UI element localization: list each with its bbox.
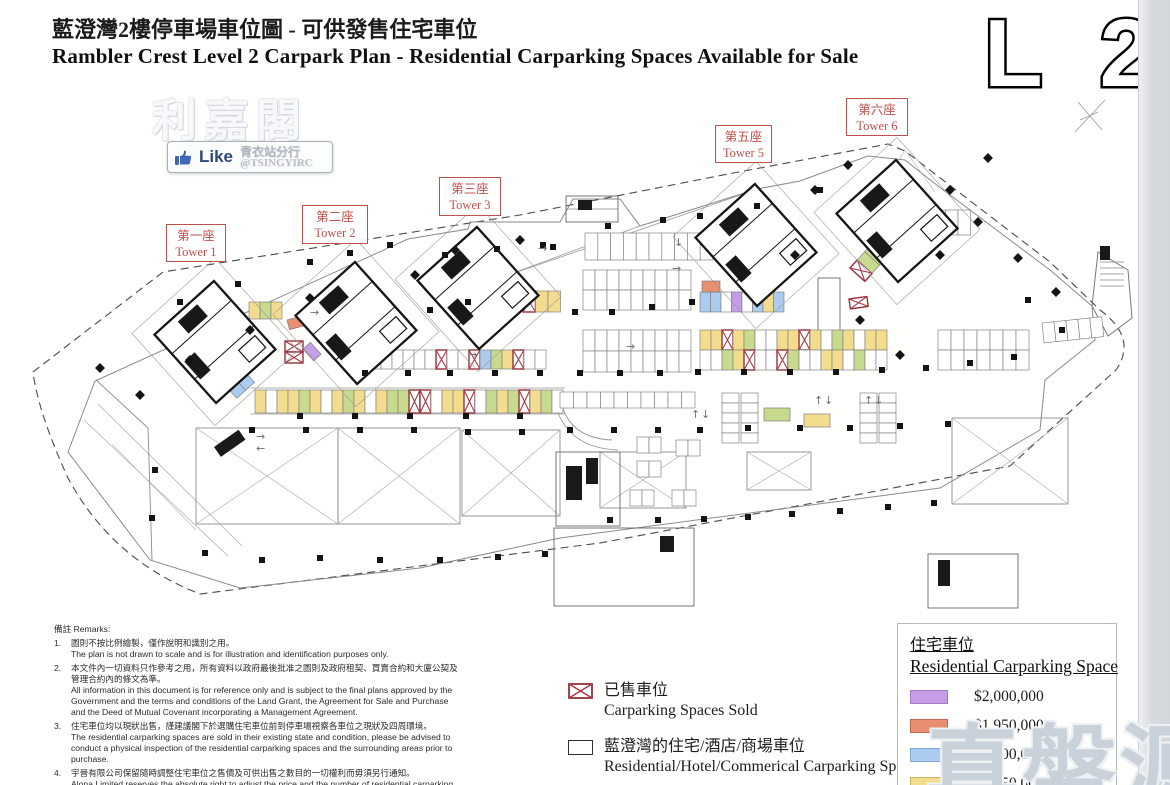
column [447,370,453,376]
column [494,246,500,252]
carparking-space [619,290,631,310]
carparking-space [700,330,711,350]
carparking-space [821,330,832,350]
carparking-space [788,350,799,370]
carparking-space [667,351,679,372]
remark-item: 1.圖則不按比例繪製，僅作說明和識別之用。The plan is not dra… [54,638,462,660]
sold-swatch-icon [568,683,593,699]
column [317,555,323,561]
drive-direction-arrow: ↓ [824,394,833,407]
carparking-space [684,490,696,506]
drive-direction-arrow: ↓ [874,394,883,407]
carparking-space [741,393,758,403]
column [517,413,523,419]
carparking-space [755,330,766,350]
carparking-space [583,290,595,310]
column [923,365,929,371]
carparking-space [491,350,502,369]
column [657,370,663,376]
carparking-space [637,437,649,453]
level-badge: L 2 [982,6,1162,107]
remarks-heading: 備註 Remarks: [54,624,462,635]
carparking-space [722,423,739,433]
column [492,370,498,376]
column [967,360,973,366]
column [357,427,363,433]
column [787,369,793,375]
remark-item: 2.本文件內一切資料只作參考之用，所有資料以政府最後批准之圖則及政府租契、買賣合… [54,663,462,718]
carparking-space [843,350,854,370]
carparking-space [860,413,877,423]
legend-open-en: Residential/Hotel/Commerical Carparking … [604,757,924,777]
legend-open-item: 藍澄灣的住宅/酒店/商場車位 Residential/Hotel/Commeri… [568,737,924,776]
column [697,213,703,219]
carparking-space [271,302,282,319]
remark-item: 3.住宅車位均以現狀出售，謹建議閣下於選購住宅車位前到停車場視察各車位之現狀及四… [54,721,462,765]
carparking-space [332,390,343,413]
column [427,307,433,313]
carparking-space [642,490,654,506]
carparking-space [964,330,977,350]
carparking-space [560,392,574,408]
column [1013,253,1023,263]
carparking-space [266,390,277,413]
carparking-space [631,351,643,372]
carparking-space [732,292,743,312]
branch-handle: @TSINGYIRC [240,158,313,169]
carparking-space [595,290,607,310]
thumbs-up-icon [174,147,194,167]
column [249,427,255,433]
carparking-space [623,233,636,260]
column [983,153,993,163]
carparking-space [977,330,990,350]
column [465,299,471,305]
level-badge-text: L 2 [984,6,1162,102]
carparking-space [676,440,688,456]
column [754,203,760,209]
carparking-space [700,292,711,312]
carparking-space [1016,350,1029,370]
column [879,367,885,373]
carparking-space [354,390,365,413]
drive-direction-arrow: ↑ [691,408,700,421]
carparking-space [502,350,513,369]
legend-sold-item: 已售車位 Carparking Spaces Sold [568,681,924,720]
carparking-space [431,390,442,413]
column [537,370,543,376]
carparking-space [860,433,877,443]
carparking-space [810,330,821,350]
source-watermark: 真盤源 [925,694,1170,785]
column [789,511,795,517]
column [202,550,208,556]
carparking-space [655,351,667,372]
carparking-space [641,392,655,408]
carparking-space [595,351,607,372]
carparking-space [277,390,288,413]
agency-watermark: 利嘉閣 [152,84,308,149]
carparking-space [722,413,739,423]
carparking-space [977,350,990,370]
carparking-space [631,270,643,290]
carparking-space [643,270,655,290]
carparking-space [376,390,387,413]
carparking-space [788,330,799,350]
carparking-space [702,281,720,292]
column [945,421,951,427]
carparking-space [631,290,643,310]
column [465,429,471,435]
column [797,425,803,431]
column [609,309,615,315]
carparking-space [310,390,321,413]
carparking-space [668,392,682,408]
column [352,413,358,419]
drive-direction-arrow: → [672,262,681,275]
carparking-space [425,350,436,369]
carparking-space [583,270,595,290]
carparking-space [679,351,691,372]
column [235,281,241,287]
carparking-space [447,350,458,369]
column [362,370,368,376]
like-label: Like [199,147,233,167]
drive-direction-arrow: ↑ [864,394,873,407]
column [611,427,617,433]
remarks-block: 備註 Remarks: 1.圖則不按比例繪製，僅作說明和識別之用。The pla… [54,624,462,785]
carparking-space [755,350,766,370]
carparking-space [486,390,497,413]
carparking-space [649,233,662,260]
column [377,557,383,563]
tower-label-tower-3: 第三座Tower 3 [439,177,501,216]
column [259,557,265,563]
carparking-space [637,461,649,477]
carparking-space [667,290,679,310]
carparking-space [879,423,896,433]
carparking-space [535,350,546,369]
carparking-space [524,350,535,369]
carparking-space [607,270,619,290]
carparking-space [541,390,552,413]
carparking-space [1016,330,1029,350]
column [810,185,820,195]
column [855,315,865,325]
carparking-space [821,350,832,370]
column [745,425,751,431]
column [689,299,695,305]
carparking-space [679,330,691,351]
column [149,515,155,521]
carparking-space [766,350,777,370]
carparking-space [832,330,843,350]
carparking-space [1003,330,1016,350]
legend-sold-zh: 已售車位 [604,681,758,701]
page-title-en: Rambler Crest Level 2 Carpark Plan - Res… [52,44,858,69]
carparking-space [299,390,310,413]
carparking-space [777,330,788,350]
carparking-space [628,392,642,408]
drive-direction-arrow: ↑ [814,394,823,407]
carparking-space [343,390,354,413]
carparking-space [721,292,732,312]
carparking-space [583,330,595,351]
carparking-space [832,350,843,370]
tower-label-tower-1: 第一座Tower 1 [166,224,226,262]
column [387,242,393,248]
carparking-space [854,330,865,350]
carparking-space [1066,319,1080,340]
carparking-space [442,390,453,413]
column [495,554,501,560]
column [695,369,701,375]
carparking-space [508,390,519,413]
carparking-space [938,330,951,350]
column [655,517,661,523]
column [463,413,469,419]
carparking-space [804,414,830,427]
column [605,223,611,229]
carparking-space [951,330,964,350]
carparking-space [722,433,739,443]
column [1051,287,1061,297]
branch-name: 青衣站分行 [240,146,313,158]
carparking-space [711,350,722,370]
column [442,252,448,258]
page-title-zh: 藍澄灣2樓停車場車位圖 - 可供發售住宅車位 [52,12,477,44]
page-edge-shadow [1138,0,1170,785]
column [897,423,903,429]
carparking-space [453,390,464,413]
carparking-space [619,351,631,372]
column [935,250,945,260]
carparking-space [682,392,696,408]
carparking-space [475,390,486,413]
carparking-space [662,233,675,260]
column [697,427,703,433]
column [649,304,655,310]
column [945,185,955,195]
column [407,413,413,419]
column [660,217,666,223]
price-legend-title-en: Residential Carparking Space [910,656,1104,677]
drive-direction-arrow: → [310,306,319,319]
column [307,259,313,265]
column [655,427,661,433]
carparking-space [741,413,758,423]
like-button: Like 青衣站分行 @TSINGYIRC [167,141,333,173]
carparking-space [741,433,758,443]
column [843,160,853,170]
carparking-space [711,330,722,350]
column [741,369,747,375]
column [1011,354,1017,360]
legend-sold-en: Carparking Spaces Sold [604,701,758,721]
carparking-space [843,330,854,350]
carparking-space [774,292,785,312]
carparking-space [700,350,711,370]
carparking-space [530,390,541,413]
drive-direction-arrow: → [468,348,477,361]
carparking-space [764,408,790,421]
column [617,370,623,376]
carparking-space [392,350,403,369]
carparking-space [722,403,739,413]
carparking-space [1090,317,1104,338]
carparking-space [741,403,758,413]
carparking-space [643,330,655,351]
column [437,557,443,563]
drive-direction-arrow: ↓ [701,408,710,421]
drive-direction-arrow: → [626,340,635,353]
carparking-space [595,270,607,290]
column [405,370,411,376]
column [303,427,309,433]
drive-direction-arrow: ← [256,442,265,455]
carparking-space [583,351,595,372]
carparking-space [744,330,755,350]
carparking-space [398,390,409,413]
column [895,350,905,360]
carparking-space [643,351,655,372]
carparking-space [810,350,821,370]
column [847,425,853,431]
carparking-space [854,350,865,370]
carparking-space [865,350,876,370]
carparking-space [480,350,491,369]
carparking-space [614,392,628,408]
document-page: →→→→←↑↓↑↓↑↓→→↓ 藍澄灣2樓停車場車位圖 - 可供發售住宅車位 Ra… [0,0,1170,785]
carparking-space [636,233,649,260]
carparking-space [1042,322,1056,343]
carparking-space [607,330,619,351]
drive-direction-arrow: ↓ [674,236,683,249]
carparking-space [607,290,619,310]
carparking-space [938,350,951,370]
carparking-space [321,390,332,413]
carparking-space [630,490,642,506]
carparking-space [649,461,661,477]
column [837,508,843,514]
drive-direction-arrow: → [538,242,547,255]
column [542,551,548,557]
column [152,467,158,473]
carparking-space [722,393,739,403]
carparking-space [879,413,896,423]
carparking-space [879,433,896,443]
carparking-space [733,330,744,350]
tower-label-tower-2: 第二座Tower 2 [302,205,368,244]
carparking-space [574,392,588,408]
column [833,369,839,375]
column [411,427,417,433]
tower-label-tower-5: 第五座Tower 5 [715,125,772,163]
plan-legend: 已售車位 Carparking Spaces Sold 藍澄灣的住宅/酒店/商場… [568,681,924,776]
column [607,517,613,523]
carparking-space [688,440,700,456]
carparking-space [655,330,667,351]
carparking-space [860,423,877,433]
carparking-space [607,351,619,372]
column [572,309,578,315]
carparking-space [288,390,299,413]
remark-item: 4.宇晉有限公司保留隨時調整住宅車位之售價及可供出售之數目的一切權利而毋須另行通… [54,768,462,785]
carparking-space [387,390,398,413]
carparking-space [497,390,508,413]
column [297,413,303,419]
column [95,363,105,373]
carparking-space [990,330,1003,350]
column [931,500,937,506]
carparking-space [619,270,631,290]
carparking-space [595,330,607,351]
column [135,390,145,400]
tower-core [395,204,561,371]
carparking-space [766,330,777,350]
carparking-space [611,233,624,260]
column [1059,327,1065,333]
column [515,235,525,245]
carparking-space [733,350,744,370]
column [567,427,573,433]
carparking-space [649,437,661,453]
column [745,514,751,520]
legend-open-zh: 藍澄灣的住宅/酒店/商場車位 [604,737,924,757]
carparking-space [711,292,722,312]
column [1025,297,1031,303]
carparking-space [876,330,887,350]
column [885,504,891,510]
carparking-space [655,290,667,310]
carparking-space [799,350,810,370]
carparking-space [601,392,615,408]
carparking-space [598,233,611,260]
column [701,516,707,522]
open-swatch-icon [568,740,593,755]
carparking-space [255,390,266,413]
carparking-space [672,490,684,506]
carparking-space [249,302,260,319]
carparking-space [865,330,876,350]
column [177,299,183,305]
carparking-space [1078,318,1092,339]
column [347,250,353,256]
carparking-space [587,392,601,408]
column [577,370,583,376]
carparking-space [655,392,669,408]
carparking-space [722,350,733,370]
carparking-space [990,350,1003,370]
carparking-space [585,233,598,260]
price-legend-title-zh: 住宅車位 [910,631,1104,655]
carparking-space [958,210,971,235]
carparking-space [655,270,667,290]
column [519,429,525,435]
tower-label-tower-6: 第六座Tower 6 [846,98,908,136]
carparking-space [951,350,964,370]
column [550,244,556,250]
carparking-space [667,330,679,351]
